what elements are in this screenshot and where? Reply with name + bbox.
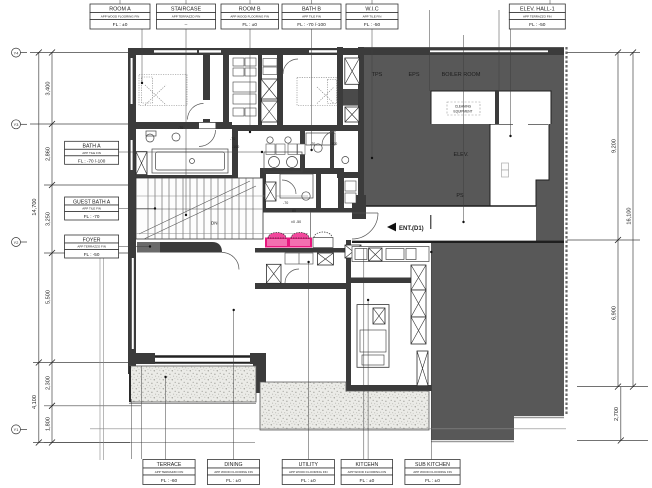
svg-text:-70: -70 [283,201,288,205]
svg-text:ROOM A: ROOM A [109,7,131,13]
svg-text:APP TILE FIN: APP TILE FIN [363,14,382,18]
svg-text:ROOM B: ROOM B [239,7,261,13]
svg-text:2,860: 2,860 [46,147,52,161]
svg-text:16,100: 16,100 [627,207,633,224]
svg-text:3,400: 3,400 [46,82,52,96]
svg-text:STAIRCASE: STAIRCASE [171,7,202,13]
svg-text:-70: -70 [230,137,235,141]
svg-text:FOYER: FOYER [83,237,101,243]
svg-text:KITCEHN: KITCEHN [356,462,379,468]
svg-text:9,200: 9,200 [612,139,618,153]
svg-text:FL : ±0: FL : ±0 [242,22,257,28]
svg-text:UTILITY: UTILITY [299,462,319,468]
svg-text:BATH A: BATH A [83,144,102,150]
svg-text:APP WOOD FLOORING FIN: APP WOOD FLOORING FIN [230,14,269,18]
svg-text:Y4: Y4 [14,51,19,55]
svg-text:BOILER ROOM: BOILER ROOM [442,72,481,78]
svg-text:APP TILE FIN: APP TILE FIN [82,151,101,155]
svg-text:FL : ±0: FL : ±0 [425,478,440,484]
svg-text:ELEV. HALL-1: ELEV. HALL-1 [520,7,555,13]
svg-text:FL : -70: FL : -70 [84,214,100,219]
svg-text:TERRACE: TERRACE [157,462,182,468]
svg-text:-100: -100 [330,142,337,146]
svg-text:Y2: Y2 [14,241,19,245]
svg-text:SUB KITCHEN: SUB KITCHEN [415,462,450,468]
svg-text:DN: DN [211,221,218,226]
svg-text:ENT.(D1): ENT.(D1) [399,226,424,232]
svg-text:APP TERRAZZO FIN: APP TERRAZZO FIN [523,14,552,18]
svg-text:APP WOOD FLOORING FIN: APP WOOD FLOORING FIN [101,14,140,18]
svg-text:1,800: 1,800 [46,417,52,431]
svg-text:3,250: 3,250 [46,212,52,226]
svg-text:6,900: 6,900 [612,306,618,320]
svg-text:-70: -70 [178,126,183,130]
svg-text:EQUIPMENT: EQUIPMENT [454,110,473,114]
svg-text:BATH B: BATH B [302,7,321,13]
svg-text:FL : -50: FL : -50 [84,252,100,257]
svg-text:APP TERRAZZO FIN: APP TERRAZZO FIN [155,470,184,474]
svg-text:PS: PS [456,193,464,199]
svg-text:APP WOOD FLOORING FIN: APP WOOD FLOORING FIN [289,470,328,474]
svg-text:FL : ±0: FL : ±0 [113,22,128,28]
svg-text:2,700: 2,700 [614,407,620,421]
svg-text:14,700: 14,700 [32,198,38,215]
svg-text:APP WOOD FLOORING FIN: APP WOOD FLOORING FIN [348,470,387,474]
svg-text:Y1: Y1 [14,428,19,432]
svg-text:FL : -50: FL : -50 [364,22,381,28]
svg-text:FL : ±0: FL : ±0 [226,478,241,484]
svg-text:ELEV.: ELEV. [453,152,469,158]
svg-text:FL : -60: FL : -60 [161,478,178,484]
svg-text:FL : ±0: FL : ±0 [301,478,316,484]
svg-text:–: – [185,23,188,28]
svg-text:APP TILE FIN: APP TILE FIN [302,14,321,18]
svg-text:FL : -70 /-100: FL : -70 /-100 [78,158,106,163]
svg-text:5,500: 5,500 [46,290,52,304]
svg-text:GUEST BATH A: GUEST BATH A [73,199,111,205]
svg-text:DINING: DINING [224,462,242,468]
svg-text:APP WOOD FLOORING FIN: APP WOOD FLOORING FIN [413,470,452,474]
svg-text:4,100: 4,100 [32,395,38,409]
svg-text:±0 -50: ±0 -50 [291,220,301,224]
svg-text:TPS: TPS [372,72,383,78]
svg-text:2,300: 2,300 [46,376,52,390]
svg-text:APP TERRAZZO FIN: APP TERRAZZO FIN [172,14,201,18]
svg-text:-70: -70 [310,142,315,146]
svg-text:FL : ±0: FL : ±0 [360,478,375,484]
svg-text:-100: -100 [232,145,239,149]
svg-text:80: 80 [292,209,296,213]
svg-text:W.I.C: W.I.C [365,7,378,13]
svg-text:FL : -50: FL : -50 [529,22,546,28]
svg-text:EPS: EPS [408,72,419,78]
svg-text:Y3: Y3 [14,123,19,127]
svg-text:APP WOOD FLOORING FIN: APP WOOD FLOORING FIN [214,470,253,474]
svg-text:FL : -70 /-100: FL : -70 /-100 [297,22,326,28]
svg-text:APP TERRAZZO FIN: APP TERRAZZO FIN [77,245,106,249]
svg-text:APP TILE FIN: APP TILE FIN [82,207,101,211]
